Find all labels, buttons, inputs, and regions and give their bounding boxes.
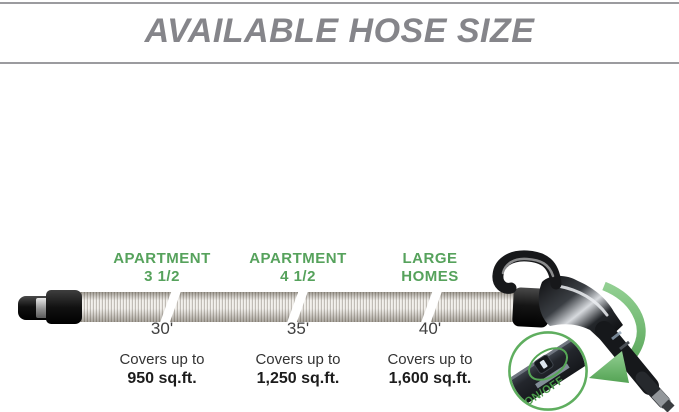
hose-size-infographic: AVAILABLE HOSE SIZE APARTMENT 3 1/2 APAR… (0, 0, 679, 412)
onoff-switch-inset: ON/OFF (491, 327, 605, 412)
zoom-arrowhead-icon (589, 351, 629, 383)
vacuum-handle-illustration: ON/OFF (0, 0, 679, 412)
